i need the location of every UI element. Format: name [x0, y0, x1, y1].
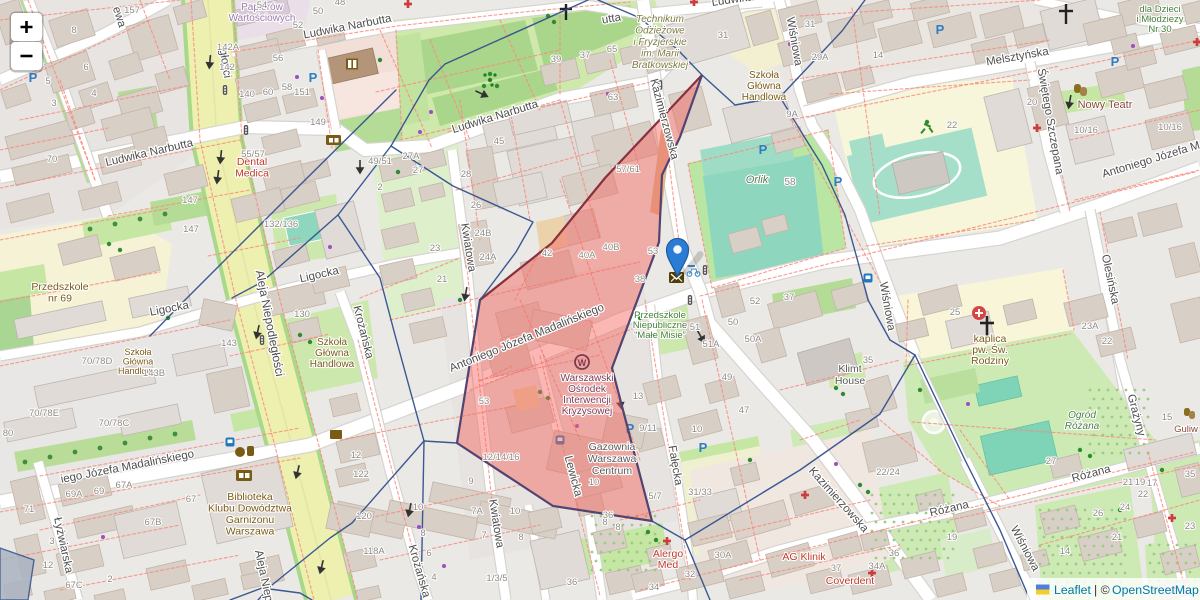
svg-text:9: 9 [468, 476, 473, 487]
svg-text:58: 58 [784, 177, 796, 188]
svg-text:8: 8 [71, 25, 76, 36]
svg-text:22: 22 [1138, 489, 1149, 500]
svg-text:49: 49 [722, 372, 733, 383]
svg-text:Med: Med [658, 559, 679, 571]
svg-text:71: 71 [24, 504, 35, 515]
svg-text:14: 14 [1060, 546, 1071, 557]
svg-text:70/78C: 70/78C [99, 418, 130, 429]
svg-text:118A: 118A [363, 546, 385, 557]
svg-text:i Fryzjerskie: i Fryzjerskie [633, 37, 687, 48]
svg-text:Orlik: Orlik [746, 174, 769, 186]
svg-text:6: 6 [426, 548, 431, 559]
svg-text:Leaflet: Leaflet [1054, 583, 1092, 597]
svg-text:20: 20 [1027, 97, 1038, 108]
svg-text:142: 142 [219, 62, 235, 73]
svg-text:63: 63 [608, 92, 619, 103]
svg-text:13: 13 [633, 391, 644, 402]
svg-text:56: 56 [273, 53, 284, 64]
svg-text:Wartościowych: Wartościowych [229, 13, 296, 24]
svg-text:55/57: 55/57 [241, 149, 265, 160]
svg-text:51A: 51A [703, 339, 721, 350]
svg-text:12: 12 [43, 560, 54, 571]
svg-text:50A: 50A [745, 334, 763, 345]
svg-text:nr 69: nr 69 [48, 293, 72, 305]
svg-text:37: 37 [580, 50, 591, 61]
svg-text:36: 36 [889, 548, 900, 559]
svg-text:35: 35 [863, 355, 874, 366]
svg-text:Biblioteka: Biblioteka [227, 491, 273, 503]
svg-text:10: 10 [413, 502, 424, 513]
svg-text:49/51: 49/51 [368, 156, 392, 167]
svg-text:31: 31 [718, 30, 729, 41]
svg-text:70/78E: 70/78E [29, 408, 59, 419]
svg-text:3: 3 [49, 536, 54, 547]
svg-text:27: 27 [413, 165, 424, 176]
svg-text:60: 60 [263, 87, 274, 98]
svg-text:12/14/16: 12/14/16 [483, 452, 520, 463]
svg-text:21: 21 [437, 274, 448, 285]
svg-text:Odzieżowe: Odzieżowe [635, 26, 685, 37]
svg-text:24: 24 [1120, 502, 1131, 513]
svg-text:147: 147 [182, 195, 198, 206]
svg-text:Medica: Medica [235, 168, 269, 180]
svg-text:31/33: 31/33 [688, 487, 712, 498]
svg-text:Bratkowskiej: Bratkowskiej [632, 60, 689, 71]
svg-text:9A: 9A [786, 109, 798, 120]
svg-text:142A: 142A [217, 42, 240, 53]
svg-text:Szkoła: Szkoła [749, 70, 779, 81]
svg-text:Ośrodek: Ośrodek [568, 384, 607, 395]
svg-text:Warszawski: Warszawski [561, 373, 614, 384]
svg-text:26: 26 [1093, 508, 1104, 519]
svg-text:10/16: 10/16 [1074, 125, 1098, 136]
svg-text:69: 69 [94, 486, 105, 497]
svg-text:50: 50 [313, 6, 324, 17]
svg-text:P: P [759, 142, 768, 157]
svg-text:Klubu Dowództwa: Klubu Dowództwa [208, 503, 292, 515]
svg-text:53: 53 [648, 246, 659, 257]
svg-text:157: 157 [124, 5, 140, 16]
svg-text:Handlowa: Handlowa [310, 359, 355, 370]
svg-text:143: 143 [221, 338, 237, 349]
svg-text:7: 7 [481, 530, 486, 541]
svg-text:P: P [309, 70, 318, 85]
svg-text:Ogród: Ogród [1068, 410, 1096, 421]
svg-text:4: 4 [431, 572, 436, 583]
svg-text:51: 51 [690, 322, 701, 333]
svg-text:7A: 7A [471, 506, 483, 517]
svg-text:10: 10 [692, 424, 703, 435]
svg-text:24A: 24A [480, 252, 498, 263]
svg-text:22/24: 22/24 [876, 467, 900, 478]
svg-text:70: 70 [47, 154, 58, 165]
svg-text:143B: 143B [143, 368, 165, 379]
svg-text:30A: 30A [715, 550, 733, 561]
svg-text:120: 120 [356, 511, 372, 522]
svg-text:10/16: 10/16 [1158, 122, 1182, 133]
svg-text:P: P [1111, 54, 1120, 69]
svg-text:14: 14 [873, 50, 884, 61]
svg-text:Szkoła: Szkoła [317, 337, 347, 348]
svg-text:132/136: 132/136 [264, 219, 298, 230]
svg-text:38: 38 [635, 274, 646, 285]
svg-text:130: 130 [294, 309, 310, 320]
svg-text:Warszawa: Warszawa [588, 453, 637, 465]
svg-text:40A: 40A [579, 250, 597, 261]
svg-text:Główna: Główna [315, 348, 349, 359]
svg-text:9/11: 9/11 [639, 423, 657, 434]
svg-text:Coverdent: Coverdent [826, 575, 875, 587]
svg-text:im. Marii: im. Marii [641, 49, 680, 60]
svg-text:2: 2 [107, 574, 112, 585]
svg-text:70/78D: 70/78D [82, 356, 113, 367]
svg-text:10: 10 [589, 477, 600, 488]
svg-text:34A: 34A [869, 561, 887, 572]
svg-text:Różana: Różana [1065, 421, 1100, 432]
svg-text:“Małe Misie”: “Małe Misie” [634, 330, 686, 341]
svg-text:8: 8 [615, 522, 620, 533]
svg-text:8: 8 [518, 532, 523, 543]
svg-text:P: P [699, 440, 708, 455]
svg-text:23A: 23A [1082, 321, 1100, 332]
svg-text:Główna: Główna [123, 357, 154, 367]
svg-text:Centrum: Centrum [592, 465, 633, 477]
svg-text:67A: 67A [116, 480, 134, 491]
svg-text:4: 4 [91, 88, 96, 99]
svg-text:23: 23 [1185, 521, 1196, 532]
svg-text:Garnizonu: Garnizonu [226, 514, 275, 526]
svg-text:1/3/5: 1/3/5 [486, 573, 507, 584]
svg-text:2: 2 [377, 182, 382, 193]
svg-text:36: 36 [603, 510, 614, 521]
svg-text:35: 35 [1185, 469, 1196, 480]
svg-text:House: House [835, 375, 866, 387]
svg-text:27: 27 [1046, 456, 1057, 467]
svg-text:19: 19 [947, 532, 958, 543]
svg-text:5: 5 [45, 76, 50, 87]
svg-text:36: 36 [567, 577, 578, 588]
svg-text:37: 37 [784, 292, 795, 303]
svg-text:Kryzysowej: Kryzysowej [562, 406, 613, 417]
svg-text:69A: 69A [66, 489, 84, 500]
svg-text:Nr 30: Nr 30 [1148, 24, 1171, 35]
svg-text:Interwencji: Interwencji [563, 395, 611, 406]
svg-text:40B: 40B [603, 242, 620, 253]
svg-text:10: 10 [510, 506, 521, 517]
svg-text:| ©: | © [1094, 583, 1110, 597]
svg-text:58: 58 [282, 82, 293, 93]
svg-text:26: 26 [471, 200, 482, 211]
svg-text:8: 8 [420, 528, 425, 539]
svg-text:28: 28 [461, 169, 472, 180]
svg-text:Warszawa: Warszawa [226, 526, 275, 538]
svg-text:31: 31 [805, 19, 816, 30]
svg-text:27A: 27A [403, 151, 421, 162]
svg-text:53: 53 [479, 396, 490, 407]
svg-text:5/7: 5/7 [648, 491, 661, 502]
svg-text:12: 12 [351, 450, 362, 461]
svg-text:57/61: 57/61 [616, 164, 640, 175]
svg-text:Główna: Główna [747, 81, 781, 92]
svg-text:67B: 67B [145, 517, 162, 528]
svg-text:32: 32 [685, 569, 696, 580]
svg-text:52: 52 [293, 20, 304, 31]
svg-text:47: 47 [739, 405, 750, 416]
svg-text:Guliw: Guliw [1174, 424, 1198, 435]
svg-text:25: 25 [950, 307, 961, 318]
svg-text:19: 19 [1135, 477, 1146, 488]
svg-text:67C: 67C [65, 580, 83, 591]
svg-text:Klimt: Klimt [838, 363, 861, 375]
svg-text:22: 22 [947, 120, 958, 131]
svg-text:24B: 24B [475, 228, 492, 239]
svg-text:21: 21 [1112, 532, 1123, 543]
svg-text:52: 52 [750, 296, 761, 307]
svg-text:Gazownia: Gazownia [589, 441, 636, 453]
svg-text:80: 80 [3, 428, 14, 439]
svg-text:3: 3 [51, 98, 56, 109]
svg-text:Handlowa: Handlowa [742, 92, 787, 103]
svg-text:151: 151 [294, 87, 310, 98]
svg-text:23: 23 [430, 243, 441, 254]
svg-text:22: 22 [1102, 336, 1113, 347]
svg-text:Szkoła: Szkoła [124, 347, 151, 357]
svg-text:39: 39 [551, 54, 562, 65]
svg-text:6: 6 [83, 62, 88, 73]
svg-text:140: 140 [239, 89, 255, 100]
svg-text:122: 122 [353, 469, 369, 480]
svg-text:P: P [936, 22, 945, 37]
svg-text:34: 34 [649, 582, 660, 593]
svg-text:149: 149 [310, 117, 326, 128]
svg-text:17: 17 [1147, 478, 1158, 489]
svg-text:P: P [834, 174, 843, 189]
svg-text:15: 15 [1162, 412, 1173, 423]
svg-text:29A: 29A [812, 52, 830, 63]
svg-text:67: 67 [186, 494, 197, 505]
svg-text:147: 147 [183, 224, 199, 235]
svg-text:54: 54 [257, 0, 268, 11]
svg-text:21: 21 [1123, 477, 1134, 488]
svg-text:Rodziny: Rodziny [971, 355, 1010, 367]
svg-text:Nowy Teatr: Nowy Teatr [1078, 99, 1133, 111]
svg-text:OpenStreetMap: OpenStreetMap [1112, 583, 1199, 597]
svg-text:48: 48 [335, 0, 346, 8]
svg-text:50: 50 [728, 317, 739, 328]
svg-text:37: 37 [831, 563, 842, 574]
svg-text:AG Klinik: AG Klinik [782, 551, 826, 563]
svg-text:W: W [578, 358, 587, 368]
svg-text:Technikum: Technikum [636, 14, 684, 25]
svg-text:42: 42 [542, 248, 553, 259]
svg-text:45: 45 [494, 136, 505, 147]
svg-text:Przedszkole: Przedszkole [31, 281, 88, 293]
svg-text:65: 65 [607, 44, 618, 55]
